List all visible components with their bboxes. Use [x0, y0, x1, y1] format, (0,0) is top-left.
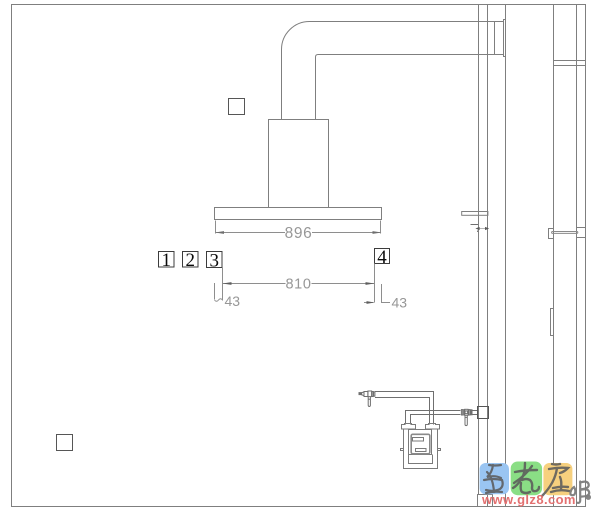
svg-text:4: 4 [377, 247, 387, 268]
svg-text:43: 43 [392, 295, 408, 311]
svg-text:3: 3 [210, 250, 220, 271]
svg-text:43: 43 [225, 293, 241, 309]
svg-text:896: 896 [285, 225, 313, 242]
svg-text:1: 1 [162, 250, 172, 271]
svg-text:www.glz8.com: www.glz8.com [481, 492, 576, 507]
svg-text:2: 2 [186, 250, 196, 271]
svg-text:810: 810 [286, 277, 312, 293]
